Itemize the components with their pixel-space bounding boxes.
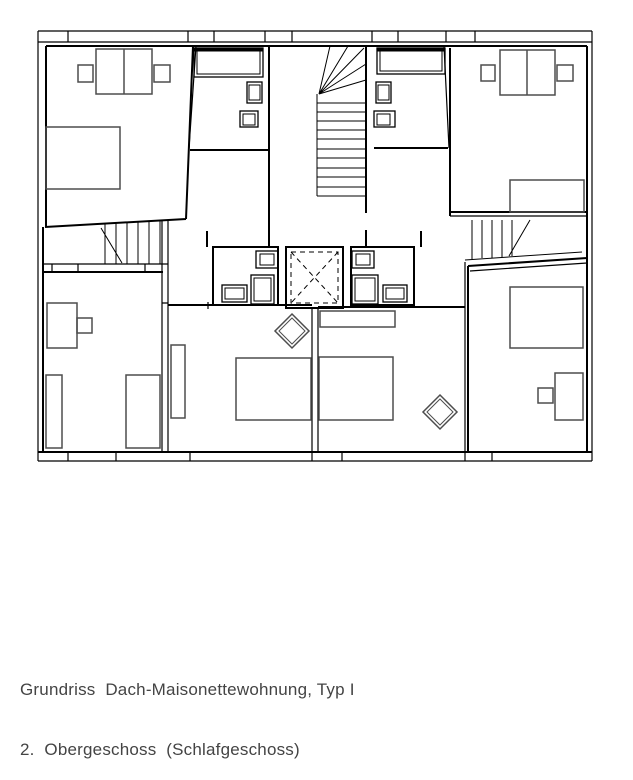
toilet-icon bbox=[247, 82, 262, 103]
roof-window-icon bbox=[46, 127, 120, 189]
desk-icon bbox=[555, 373, 583, 420]
shower-icon bbox=[251, 275, 274, 304]
double-bed-icon bbox=[96, 49, 152, 94]
sink-icon bbox=[256, 251, 278, 268]
toilet-icon bbox=[383, 285, 407, 302]
bed-icon bbox=[319, 357, 393, 420]
cabinet-icon bbox=[46, 375, 62, 448]
walls-primary bbox=[38, 46, 592, 452]
bedroom-bottom-middle-left bbox=[171, 314, 311, 420]
floor-plan bbox=[0, 0, 633, 705]
facade-ticks-top bbox=[68, 31, 475, 42]
wardrobe-icon bbox=[377, 48, 445, 74]
sink-icon bbox=[374, 111, 395, 127]
dressing-room-right bbox=[374, 48, 445, 127]
dresser-icon bbox=[510, 180, 584, 212]
bed-icon bbox=[510, 287, 583, 348]
sink-icon bbox=[240, 111, 258, 127]
caption-title: Grundriss Dach-Maisonettewohnung, Typ I bbox=[20, 680, 355, 700]
interior-walls bbox=[38, 46, 592, 452]
desk-icon bbox=[47, 303, 77, 348]
walls-secondary bbox=[43, 46, 587, 452]
caption: Grundriss Dach-Maisonettewohnung, Typ I … bbox=[20, 640, 355, 780]
toilet-icon bbox=[376, 82, 391, 103]
dressing-room-left bbox=[194, 48, 263, 127]
bedroom-top-left bbox=[46, 49, 170, 189]
sink-icon bbox=[352, 251, 374, 268]
floor-plan-drawing bbox=[0, 0, 633, 700]
nightstand-icon bbox=[78, 65, 93, 82]
nightstand-icon bbox=[154, 65, 170, 82]
wardrobe-icon bbox=[320, 311, 395, 327]
chair-diamond-icon bbox=[423, 395, 457, 429]
stair-right bbox=[465, 220, 582, 260]
nightstand-icon bbox=[557, 65, 573, 81]
stair-center bbox=[317, 46, 366, 196]
toilet-icon bbox=[222, 285, 247, 302]
room-bottom-right bbox=[510, 287, 583, 420]
bathroom-left bbox=[213, 247, 278, 305]
stair-left bbox=[101, 221, 160, 264]
wardrobe-icon bbox=[194, 48, 263, 77]
shaft-dashed-cross bbox=[291, 252, 338, 303]
double-bed-icon bbox=[500, 50, 555, 95]
shower-icon bbox=[352, 275, 378, 304]
nightstand-icon bbox=[481, 65, 495, 81]
bathroom-right bbox=[351, 247, 414, 305]
bath-left-wall bbox=[213, 247, 278, 305]
wardrobe-icon bbox=[171, 345, 185, 418]
cabinet-icon bbox=[126, 375, 160, 448]
caption-subtitle: 2. Obergeschoss (Schlafgeschoss) bbox=[20, 740, 355, 760]
bed-icon bbox=[236, 358, 311, 420]
chair-icon bbox=[538, 388, 553, 403]
bedroom-bottom-middle-right bbox=[319, 311, 457, 429]
bedroom-top-right bbox=[481, 50, 584, 212]
room-bottom-left bbox=[46, 303, 160, 448]
facade-ticks-bottom bbox=[68, 452, 492, 461]
chair-diamond-icon bbox=[275, 314, 309, 348]
stairs bbox=[101, 46, 582, 264]
chair-icon bbox=[77, 318, 92, 333]
shaft bbox=[286, 247, 343, 308]
